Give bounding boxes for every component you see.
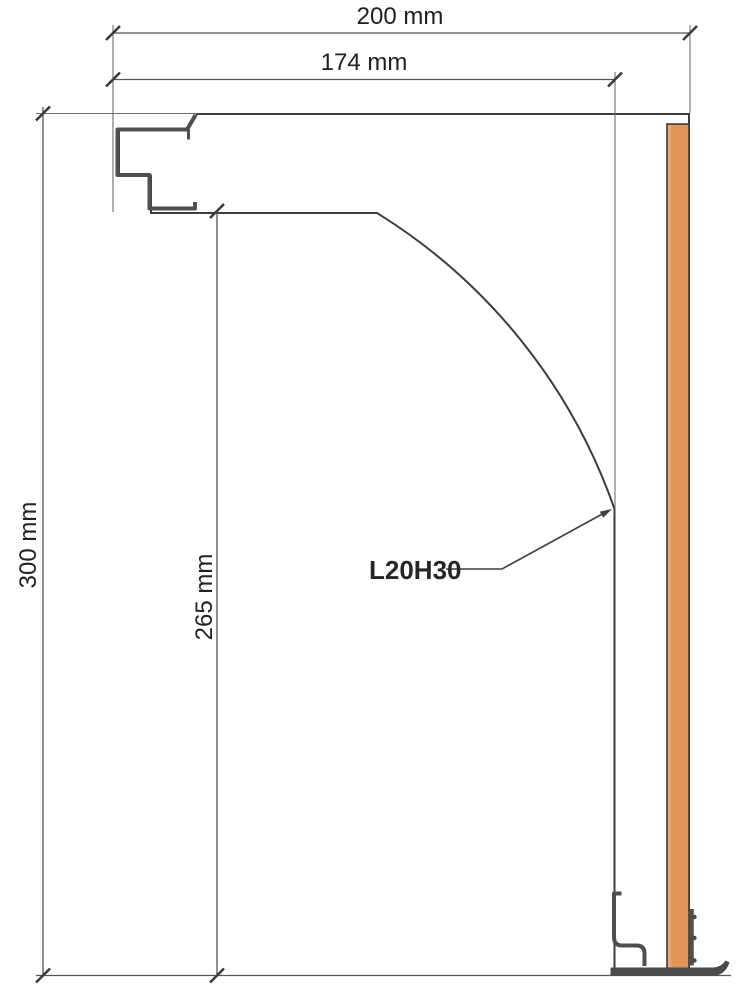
- technical-drawing: 200 mm 174 mm 300 mm 265 mm L20H30: [0, 0, 741, 997]
- callout-arrowhead: [600, 509, 612, 518]
- callout-label: L20H30: [369, 555, 462, 585]
- end-profile-metal: [118, 115, 196, 209]
- dim-overall-width-label: 200 mm: [357, 3, 444, 30]
- dim-inner-height: 265 mm: [191, 204, 224, 983]
- drawing-canvas: 200 mm 174 mm 300 mm 265 mm L20H30: [0, 0, 741, 997]
- dim-overall-width: 200 mm: [106, 3, 697, 40]
- dim-inner-height-label: 265 mm: [191, 554, 218, 641]
- clip-ridge: [692, 936, 696, 940]
- dim-overall-height-label: 300 mm: [15, 502, 42, 589]
- profile-callout: L20H30: [369, 509, 612, 585]
- wall-base-channel: [614, 894, 645, 967]
- clip-ridge: [692, 958, 696, 962]
- dim-inner-width-label: 174 mm: [321, 49, 408, 76]
- dim-inner-width: 174 mm: [106, 49, 622, 87]
- dim-overall-height: 300 mm: [15, 107, 50, 983]
- callout-leader-line: [446, 512, 606, 569]
- clip-ridge: [692, 915, 696, 919]
- material-section: [119, 114, 689, 970]
